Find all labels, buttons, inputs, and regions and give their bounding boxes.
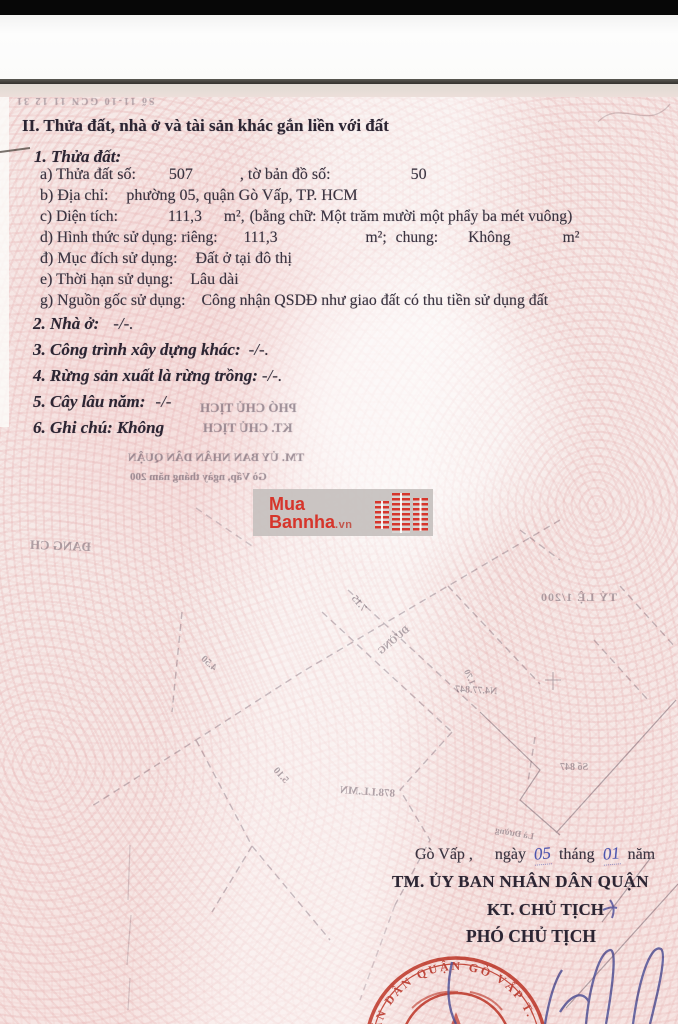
handwritten-day: 05 <box>533 843 552 865</box>
month-word: tháng <box>559 846 595 863</box>
pencil-scribble <box>598 104 670 122</box>
day-word: ngày <box>495 846 526 863</box>
handwritten-month: 01 <box>602 843 621 865</box>
overlay-graphics: HÂN DÂN QUẬN GÒ VẤP T. <box>0 0 678 1024</box>
fold-lines <box>127 672 678 1010</box>
margin-dash <box>0 148 30 152</box>
committee-line: TM. ỦY BAN NHÂN DÂN QUẬN <box>392 872 649 892</box>
kt-chairman-line: KT. CHỦ TỊCH <box>487 900 604 920</box>
place-date-line: Gò Vấp ,ngày05tháng01năm <box>415 844 655 865</box>
place-name: Gò Vấp , <box>415 846 473 863</box>
official-stamp: HÂN DÂN QUẬN GÒ VẤP T. <box>366 958 546 1024</box>
pen-tick-mark <box>603 900 617 918</box>
vice-chairman-line: PHÓ CHỦ TỊCH <box>466 926 596 947</box>
year-word: năm <box>628 846 656 863</box>
scanned-land-certificate: Số 11-10 GCN 11 12 31 II. Thửa đất, nhà … <box>0 0 678 1024</box>
